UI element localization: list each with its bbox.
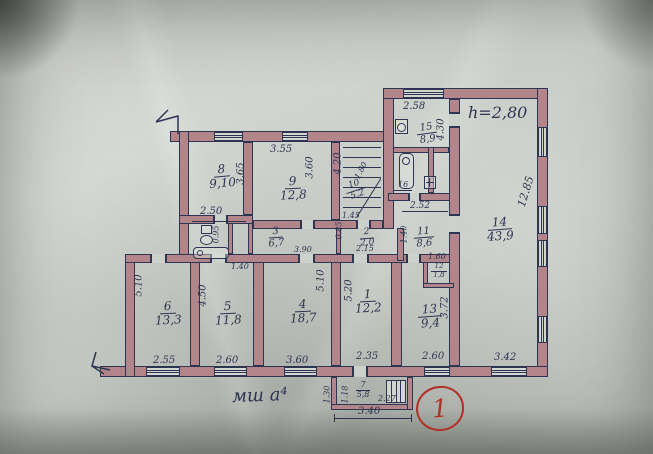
dimension: 5.10 <box>134 274 145 296</box>
room-area: 12,8 <box>273 188 314 203</box>
window-symbol <box>538 127 547 157</box>
dimension: 1.60 <box>428 252 446 261</box>
door-opening <box>449 112 460 128</box>
room-area: 11,8 <box>208 313 249 328</box>
plan-number-badge: 1 <box>414 384 465 432</box>
ceiling-height-note: h=2,80 <box>468 103 527 122</box>
room-area: 1,8 <box>428 272 450 280</box>
wall-segment <box>248 223 253 254</box>
wall-segment <box>190 262 200 366</box>
dimension: 3.90 <box>294 245 312 254</box>
window-symbol <box>424 367 450 376</box>
room-area: 12,2 <box>348 301 389 316</box>
dimension: 2.60 <box>422 351 444 362</box>
window-symbol <box>214 367 247 376</box>
bathtub-drain-icon <box>197 250 203 256</box>
wall-segment <box>125 254 135 377</box>
wall-segment <box>391 262 402 366</box>
dimension: 1.18 <box>340 386 349 404</box>
room-area: 43,9 <box>478 229 523 245</box>
door-opening <box>406 254 421 263</box>
door-opening <box>352 366 368 377</box>
floor-plan: 112,2 22,0 36,7 418,7 511,8 613,3 75,8 8… <box>0 0 653 454</box>
dimension: 5.20 <box>344 279 355 301</box>
room-label-5: 511,8 <box>207 299 248 328</box>
dimension: 3.40 <box>358 406 380 417</box>
dimension: 2.15 <box>356 244 374 253</box>
room-number: 3 <box>268 226 283 239</box>
dimension: 2.50 <box>200 206 222 217</box>
wall-segment <box>393 147 449 153</box>
room-area: 18,7 <box>283 311 324 326</box>
door-opening <box>300 220 315 229</box>
room-label-14: 1443,9 <box>477 214 523 244</box>
dimension-line <box>334 418 412 419</box>
room-area: 8,6 <box>406 237 443 250</box>
dimension: 2.27 <box>378 394 396 403</box>
dimension-tick <box>334 414 335 422</box>
room-label-16: 16 <box>394 181 412 191</box>
dimension: 12.85 <box>515 175 537 209</box>
dimension: 4.30 <box>436 118 447 140</box>
window-symbol <box>538 206 547 234</box>
section-mark-icon <box>84 344 120 378</box>
window-symbol <box>214 132 243 141</box>
dimension: 1.45 <box>342 211 360 220</box>
wall-segment <box>179 131 189 262</box>
dimension: 3.60 <box>286 355 308 366</box>
window-symbol <box>538 316 547 343</box>
dimension: 3.55 <box>270 144 292 155</box>
wall-segment <box>423 283 454 288</box>
wall-segment <box>331 262 341 366</box>
dimension: 4.20 <box>333 152 344 174</box>
dimension: 3.72 <box>440 296 451 318</box>
dimension: 2.60 <box>216 355 238 366</box>
room-label-12: 121,8 <box>428 263 450 279</box>
dimension: 2.52 <box>410 201 430 211</box>
dimension: 1.30 <box>322 386 331 404</box>
dimension: 1.40 <box>399 226 408 244</box>
dimension: 4.50 <box>198 284 209 306</box>
sheet-note: мш а⁴ <box>232 384 288 407</box>
dimension: 2.55 <box>153 355 175 366</box>
window-symbol <box>146 367 180 376</box>
room-label-7: 75,8 <box>350 381 376 400</box>
water-heater-cross <box>426 182 434 183</box>
dimension-line <box>192 221 246 222</box>
dimension: 3.65 <box>236 162 247 184</box>
dimension-tick <box>411 414 412 422</box>
dimension: 5.10 <box>316 269 327 291</box>
window-symbol <box>403 89 444 98</box>
window-symbol <box>538 240 547 267</box>
window-symbol <box>491 367 527 376</box>
dimension: 3.60 <box>305 156 316 178</box>
wall-segment <box>407 377 413 410</box>
room-label-3: 36,7 <box>257 225 295 250</box>
door-opening <box>352 254 369 263</box>
room-label-4: 418,7 <box>282 297 323 326</box>
section-mark-icon <box>148 104 184 138</box>
dimension: 0.85 <box>334 222 343 240</box>
dimension: 2.58 <box>403 101 425 112</box>
room-label-11: 118,6 <box>405 225 443 250</box>
door-opening <box>449 214 460 234</box>
room-area: 6,7 <box>258 237 295 250</box>
window-symbol <box>284 367 317 376</box>
door-opening <box>298 254 315 263</box>
dimension: 0.95 <box>211 226 220 244</box>
dimension: 2.35 <box>356 351 378 362</box>
room-area: 5,8 <box>350 391 376 400</box>
wall-segment <box>253 262 264 366</box>
sink-bowl-icon <box>397 123 406 132</box>
toilet-tank-icon <box>201 225 212 234</box>
plan-number: 1 <box>431 393 449 423</box>
wall-segment <box>383 88 394 229</box>
bathtub-drain-icon <box>402 157 410 165</box>
room-number: 16 <box>394 181 412 191</box>
room-label-6: 613,3 <box>147 299 188 328</box>
dimension: 3.42 <box>494 352 516 363</box>
window-symbol <box>282 132 308 141</box>
room-area: 13,3 <box>148 313 189 328</box>
dimension-line <box>402 211 448 212</box>
door-opening <box>150 254 167 263</box>
dimension: 1.40 <box>231 262 249 271</box>
door-opening <box>408 193 421 201</box>
